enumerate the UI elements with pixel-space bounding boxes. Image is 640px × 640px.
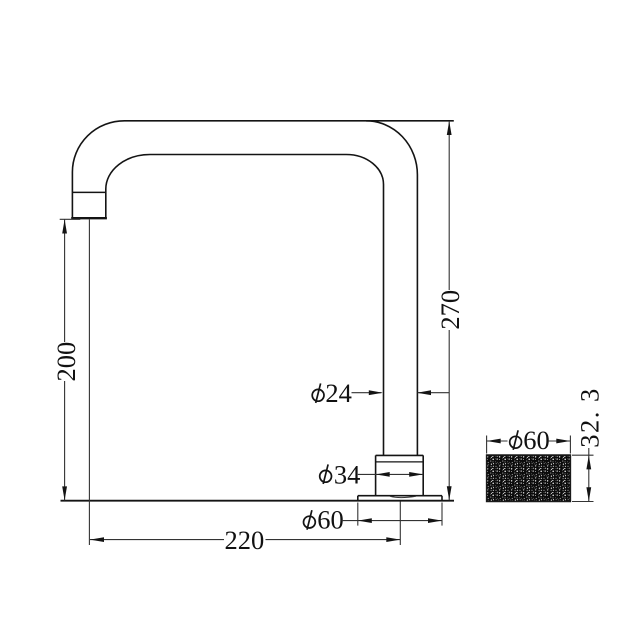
svg-text:200: 200	[51, 342, 81, 382]
svg-text:24: 24	[325, 378, 352, 408]
svg-text:34: 34	[334, 459, 361, 489]
svg-text:32. 3: 32. 3	[575, 387, 605, 448]
svg-text:60: 60	[317, 505, 344, 535]
svg-text:220: 220	[225, 525, 265, 555]
svg-text:270: 270	[435, 290, 465, 330]
svg-text:60: 60	[523, 425, 550, 455]
